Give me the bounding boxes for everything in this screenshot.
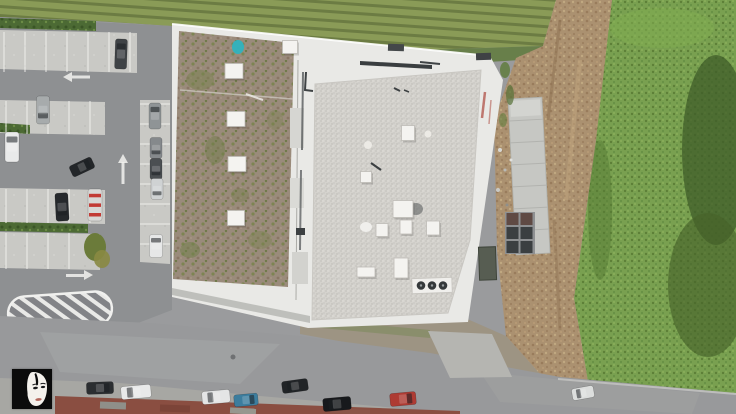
car-roof-highlight	[579, 388, 587, 397]
dumpster	[478, 247, 496, 281]
car-glass	[117, 43, 126, 49]
car-roof-highlight	[242, 396, 250, 405]
rubble	[504, 169, 507, 172]
container-stripe	[89, 213, 101, 217]
car	[37, 96, 50, 124]
car-roof-highlight	[152, 243, 161, 250]
car	[114, 39, 127, 69]
paver-block-stack	[521, 213, 533, 225]
middle-strip-panel	[290, 178, 304, 208]
car-glass	[151, 238, 161, 243]
rubble	[498, 148, 502, 152]
roof-skylight	[357, 267, 375, 277]
cyan-tarp	[232, 40, 244, 54]
roof-skylight	[361, 172, 372, 183]
car-glass	[249, 395, 255, 404]
aerial-photo-svg	[0, 0, 736, 414]
car-roof-highlight	[96, 384, 104, 392]
middle-strip-panel	[292, 252, 308, 284]
roof-vent-dome	[360, 222, 372, 232]
car-roof-highlight	[332, 399, 341, 409]
parking-bush	[94, 250, 110, 268]
roof-skylight	[400, 220, 412, 234]
car	[151, 179, 163, 200]
car-glass	[7, 137, 18, 143]
roof-skylight	[283, 41, 298, 54]
hvac-fan-hub	[442, 284, 444, 286]
roof-skylight	[402, 126, 415, 141]
car	[120, 384, 151, 400]
hvac-fan-hub	[431, 284, 433, 286]
roof-vent-dome	[425, 131, 432, 138]
striped-container	[88, 189, 102, 221]
paver-block-stack	[507, 213, 519, 225]
car	[201, 389, 230, 404]
gravel-roof	[312, 70, 481, 320]
car-roof-highlight	[152, 166, 160, 172]
paver-block-stack	[521, 241, 533, 253]
rubble	[496, 188, 500, 192]
car	[149, 103, 161, 129]
container-stripe	[89, 203, 101, 207]
roof-skylight	[376, 224, 388, 237]
car	[5, 132, 19, 162]
car-roof-highlight	[211, 392, 220, 402]
car-roof-highlight	[152, 145, 160, 151]
car-roof-highlight	[57, 203, 66, 212]
car-roof-highlight	[151, 112, 159, 120]
rubble	[510, 159, 513, 162]
car	[234, 393, 259, 407]
car-roof-highlight	[131, 387, 141, 397]
roof-skylight	[427, 221, 440, 235]
paver-block-stack	[521, 227, 533, 239]
car-roof-highlight	[153, 186, 161, 192]
roof-skylight	[228, 211, 245, 226]
middle-strip-hatch	[296, 228, 305, 235]
roof-skylight	[228, 157, 246, 172]
green-roof-vegetation	[186, 70, 214, 90]
car-glass	[151, 107, 160, 112]
car-roof-highlight	[291, 381, 300, 390]
roof-skylight	[393, 201, 413, 218]
paver-block-stack	[507, 241, 519, 253]
car-roof-highlight	[7, 143, 17, 152]
car-roof-highlight	[39, 106, 48, 114]
arrow-right-shaft	[66, 274, 84, 277]
arrow-up-shaft	[122, 162, 125, 184]
wall-weeds	[499, 113, 507, 127]
wall-weeds	[506, 85, 514, 105]
wall-weeds	[500, 62, 510, 78]
car-roof-highlight	[117, 49, 125, 58]
car	[389, 391, 416, 406]
car-roof-highlight	[399, 394, 408, 404]
car	[55, 193, 69, 222]
arrow-left-shaft	[72, 76, 90, 79]
car	[322, 396, 351, 411]
paver-block-stack	[507, 227, 519, 239]
bright-grass-patch	[610, 8, 714, 48]
car	[86, 382, 113, 395]
concrete-slab-top	[510, 99, 541, 117]
green-roof-vegetation	[267, 110, 283, 130]
green-roof-vegetation	[180, 242, 200, 258]
roof-skylight	[225, 64, 243, 79]
green-roof-vegetation	[231, 188, 249, 202]
car	[150, 159, 162, 180]
car	[150, 235, 163, 258]
hvac-fan-hub	[420, 284, 422, 286]
green-roof-vegetation	[205, 136, 225, 164]
terrain-layer	[0, 0, 736, 414]
aerial-photo	[0, 0, 736, 414]
roof-skylight	[394, 258, 408, 278]
container-stripe	[89, 194, 101, 198]
paver-patch	[160, 404, 190, 412]
paver-patch	[100, 402, 126, 410]
roof-pallet	[476, 53, 491, 61]
car	[150, 138, 162, 159]
middle-strip-wall	[302, 72, 303, 150]
green-roof-vegetation	[248, 231, 272, 249]
manhole	[231, 355, 236, 360]
roof-vent-dome	[364, 141, 372, 149]
roof-skylight	[227, 112, 245, 127]
agency-logo-watermark	[12, 369, 52, 409]
roof-pallet	[388, 44, 404, 52]
middle-strip-wall	[300, 170, 301, 250]
car-glass	[406, 393, 412, 403]
car-glass	[104, 383, 110, 392]
rubble	[506, 204, 509, 207]
